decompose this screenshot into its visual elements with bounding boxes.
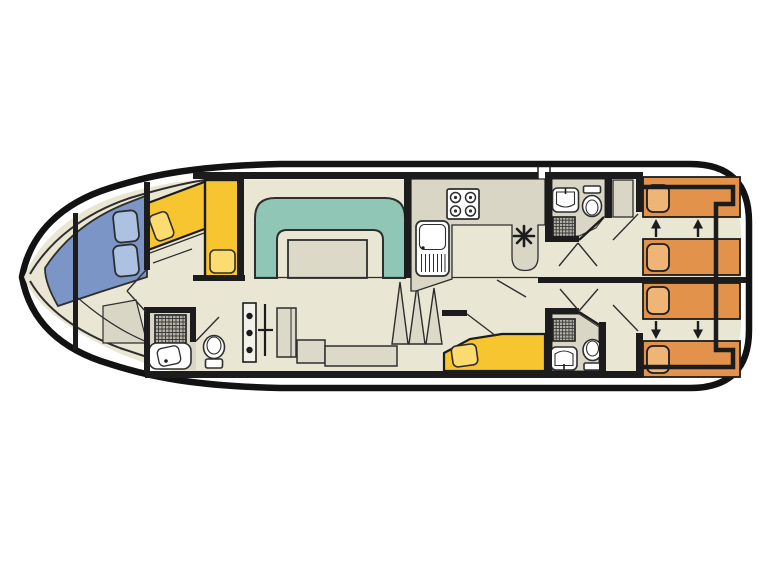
burner-dot bbox=[454, 209, 457, 212]
burner-dot bbox=[469, 209, 472, 212]
boat-floor-plan bbox=[0, 0, 768, 576]
faucet-dot bbox=[421, 246, 424, 249]
wall-bow-bulkhead bbox=[73, 213, 78, 350]
wall-cabins-left-upper bbox=[636, 172, 643, 212]
wall-botbath-right bbox=[599, 322, 606, 372]
step-dot bbox=[246, 330, 252, 336]
shower-icon bbox=[155, 315, 186, 343]
wall-bow-cabin-left-lower bbox=[144, 312, 150, 372]
washbasin-icon bbox=[149, 343, 191, 369]
wall-cabins-left-lower bbox=[636, 333, 643, 372]
wall-bow-cabin-right bbox=[237, 177, 244, 281]
wall-topbath-bottom bbox=[545, 236, 579, 242]
wardrobe bbox=[613, 180, 633, 217]
wall-under-berth bbox=[193, 275, 245, 281]
toilet-icon bbox=[583, 186, 602, 217]
burner-dot bbox=[454, 196, 457, 199]
sideboard-left bbox=[297, 340, 325, 363]
sideboard-long bbox=[325, 346, 397, 366]
wall-top-right bbox=[550, 172, 643, 179]
toilet-icon bbox=[204, 336, 225, 369]
wall-berth-stub bbox=[442, 310, 467, 316]
drainer-lines bbox=[422, 254, 446, 272]
berth-pillow bbox=[210, 250, 235, 273]
heater-icon bbox=[514, 226, 534, 246]
shower-icon bbox=[553, 319, 575, 341]
berth-pillow bbox=[451, 343, 479, 367]
wall-bow-bath-top bbox=[144, 307, 196, 313]
wall-botbath-top bbox=[545, 308, 579, 314]
washbasin-icon bbox=[551, 347, 577, 370]
faucet-dot bbox=[164, 359, 168, 363]
dinette-table bbox=[288, 240, 367, 278]
washbasin-icon bbox=[553, 188, 579, 212]
step-dot bbox=[246, 347, 252, 353]
sink-basin bbox=[420, 225, 446, 250]
wall-topbath-left bbox=[545, 172, 552, 242]
wall-topbath-right bbox=[605, 172, 612, 218]
basin-inner bbox=[557, 192, 575, 207]
shower-icon bbox=[553, 217, 575, 239]
toilet-tank bbox=[584, 186, 601, 193]
bed-pillow bbox=[647, 244, 669, 271]
toilet-seat bbox=[586, 200, 598, 215]
bed-pillow bbox=[647, 287, 669, 314]
saloon-cabinet bbox=[277, 308, 296, 357]
toilet-tank bbox=[584, 363, 601, 370]
wall-top-left bbox=[193, 172, 538, 179]
bench-cushion bbox=[112, 244, 139, 277]
stove-icon bbox=[447, 189, 479, 219]
toilet-seat bbox=[587, 341, 599, 356]
basin bbox=[156, 345, 181, 367]
wall-bottom bbox=[145, 371, 643, 378]
wall-bow-cabin-left-upper bbox=[144, 182, 150, 270]
step-dot bbox=[246, 313, 252, 319]
burner-dot bbox=[469, 196, 472, 199]
wall-botbath-left bbox=[545, 308, 552, 372]
toilet-seat bbox=[207, 337, 221, 354]
bench-cushion bbox=[112, 210, 139, 243]
basin-inner bbox=[555, 351, 573, 366]
bow-steps bbox=[243, 303, 256, 362]
wall-mid bbox=[538, 277, 746, 283]
wall-bow-bath-inner bbox=[190, 307, 196, 342]
galley-sink-icon bbox=[416, 221, 449, 276]
wall-dinette-right bbox=[404, 172, 411, 278]
toilet-base bbox=[206, 359, 223, 368]
